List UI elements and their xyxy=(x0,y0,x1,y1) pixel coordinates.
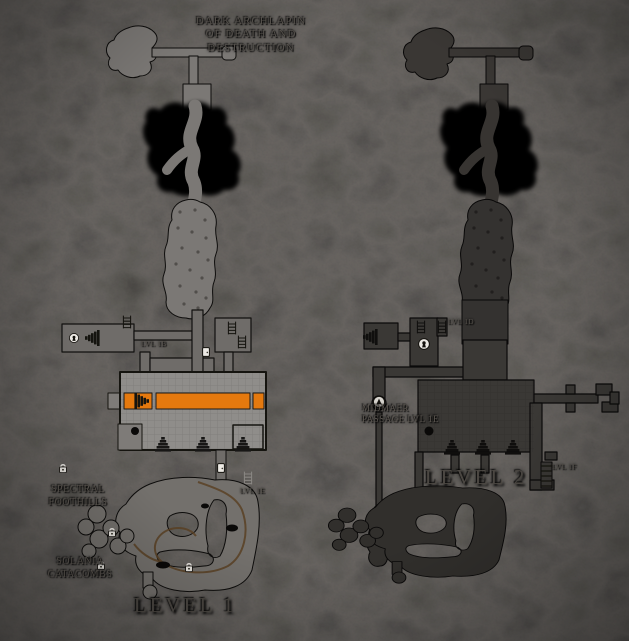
label-stair-1d: LVL 1D xyxy=(448,318,474,326)
map-title-line2: OF DEATH AND xyxy=(196,28,306,41)
label-stair-1e: LVL 1E xyxy=(240,487,265,495)
label-stair-1b: LVL 1B xyxy=(141,340,167,348)
label-solania-catacombs: SOLANIA CATACOMBS xyxy=(48,556,113,581)
map-title-line1: DARK ARCHLAPIN xyxy=(196,15,306,28)
label-stair-1f: LVL 1F xyxy=(552,463,577,471)
map-title-line3: DESTRUCTION xyxy=(196,42,306,55)
label-spectral-foothills: SPECTRAL FOOTHILLS xyxy=(49,484,108,509)
map-title: DARK ARCHLAPIN OF DEATH AND DESTRUCTION xyxy=(196,15,306,55)
dungeon-map-image: DARK ARCHLAPIN OF DEATH AND DESTRUCTION … xyxy=(0,0,629,641)
map-labels: DARK ARCHLAPIN OF DEATH AND DESTRUCTION … xyxy=(0,0,629,641)
label-midmaer-passage: MIDMAER PASSAGE LVL 1E xyxy=(362,403,439,426)
label-level1: LEVEL 1 xyxy=(134,593,236,618)
label-level2: LEVEL 2 xyxy=(425,465,527,490)
